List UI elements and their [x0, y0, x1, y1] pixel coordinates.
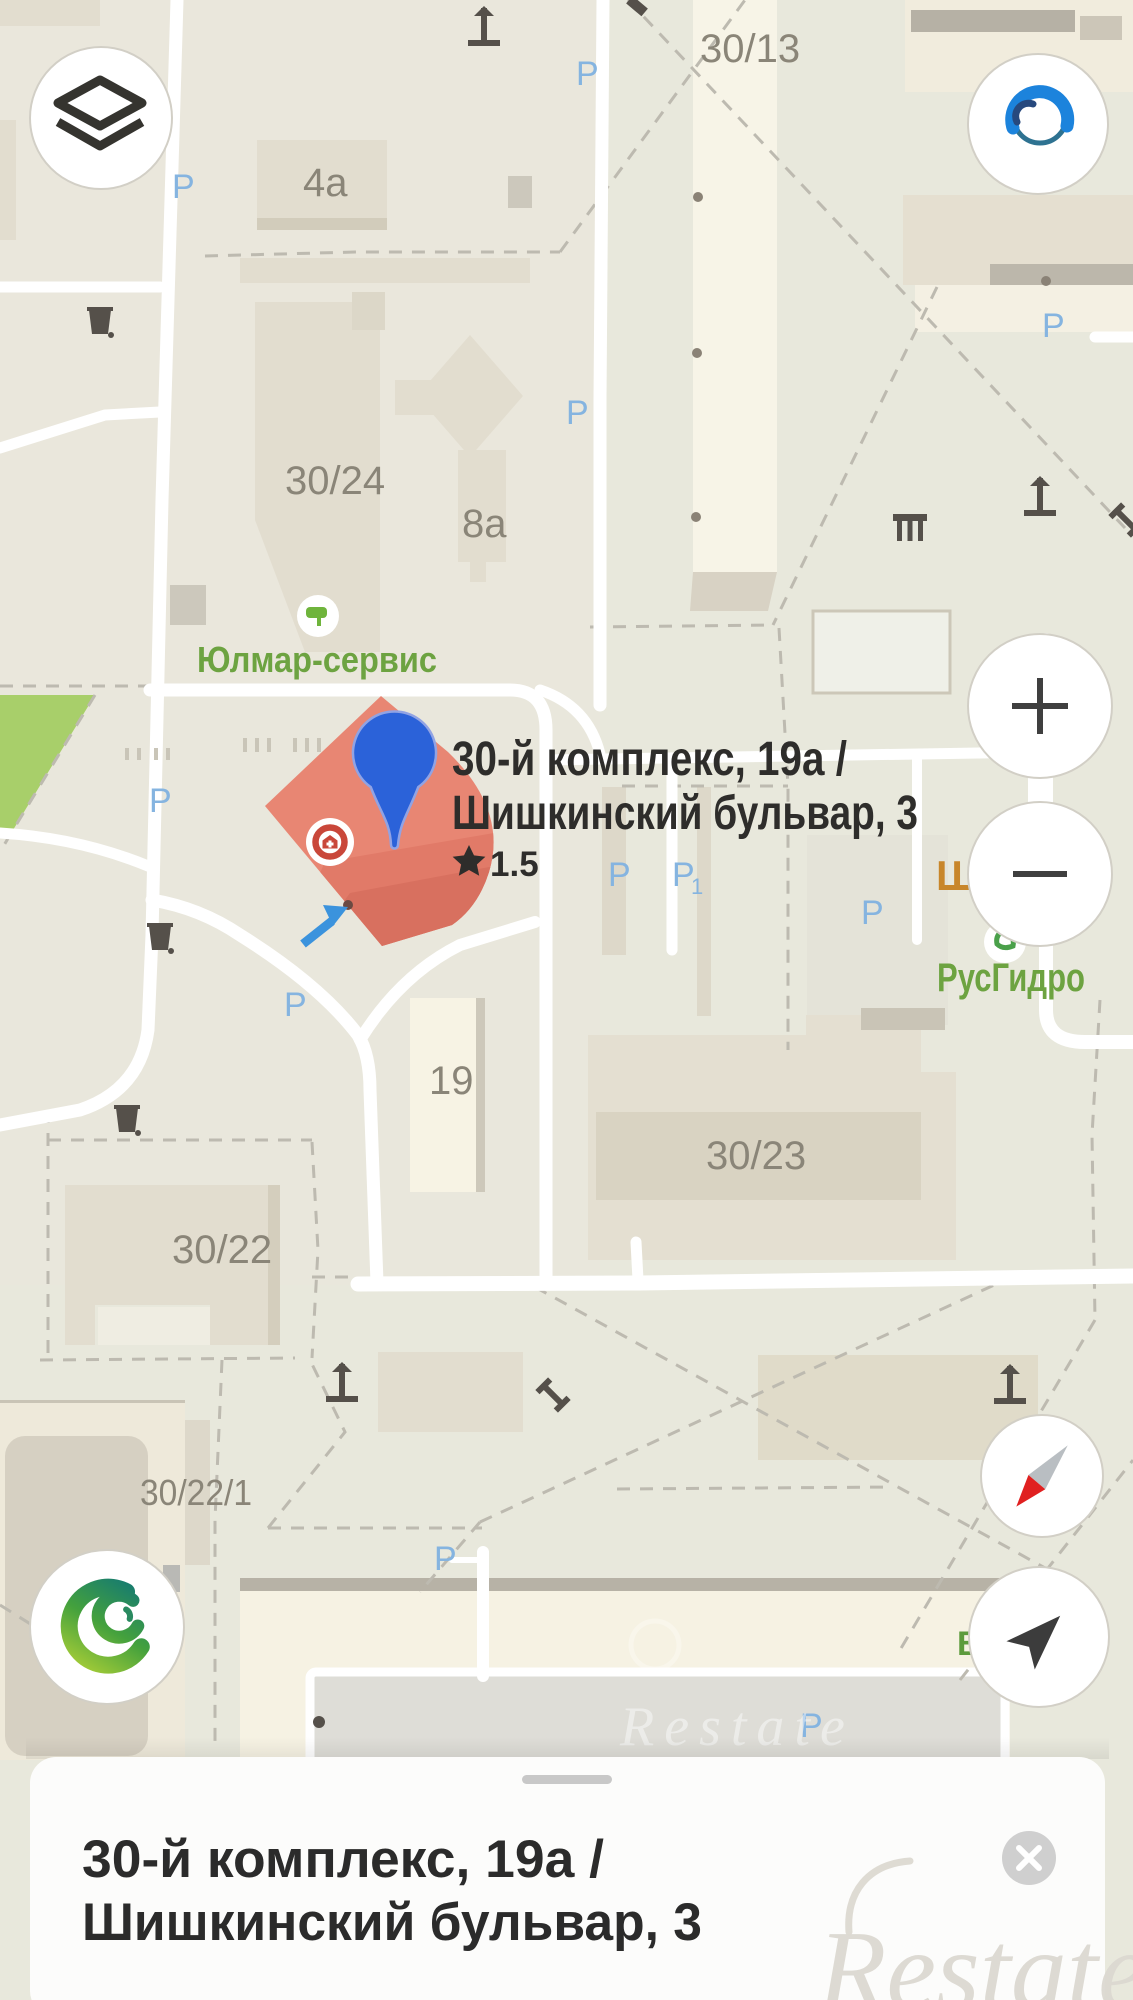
svg-text:Шишкинский бульвар, 3: Шишкинский бульвар, 3: [82, 1893, 702, 1952]
svg-text:P: P: [861, 894, 884, 932]
svg-text:1: 1: [691, 874, 703, 899]
svg-text:4a: 4a: [303, 161, 348, 205]
svg-text:1.5: 1.5: [490, 845, 539, 884]
svg-text:30/22/1: 30/22/1: [140, 1472, 252, 1513]
svg-text:Шишкинский бульвар, 3: Шишкинский бульвар, 3: [452, 787, 918, 840]
svg-text:30-й комплекс, 19а /: 30-й комплекс, 19а /: [82, 1830, 604, 1889]
svg-text:30-й комплекс, 19а /: 30-й комплекс, 19а /: [452, 733, 847, 786]
svg-text:P: P: [172, 168, 195, 206]
svg-text:P: P: [149, 782, 172, 820]
svg-text:P: P: [434, 1540, 457, 1578]
svg-text:8a: 8a: [462, 502, 507, 546]
svg-text:РусГидро: РусГидро: [937, 956, 1085, 1000]
svg-text:P: P: [576, 55, 599, 93]
svg-text:P: P: [608, 856, 631, 894]
svg-text:Юлмар-сервис: Юлмар-сервис: [197, 639, 437, 680]
svg-text:Restate: Restate: [817, 1909, 1133, 2000]
svg-text:30/24: 30/24: [285, 459, 385, 503]
svg-text:P: P: [284, 986, 307, 1024]
svg-text:30/22: 30/22: [172, 1228, 272, 1272]
svg-text:30/13: 30/13: [700, 27, 800, 71]
svg-text:P: P: [566, 394, 589, 432]
svg-text:19: 19: [429, 1059, 474, 1103]
svg-text:30/23: 30/23: [706, 1134, 806, 1178]
svg-text:P: P: [1042, 307, 1065, 345]
